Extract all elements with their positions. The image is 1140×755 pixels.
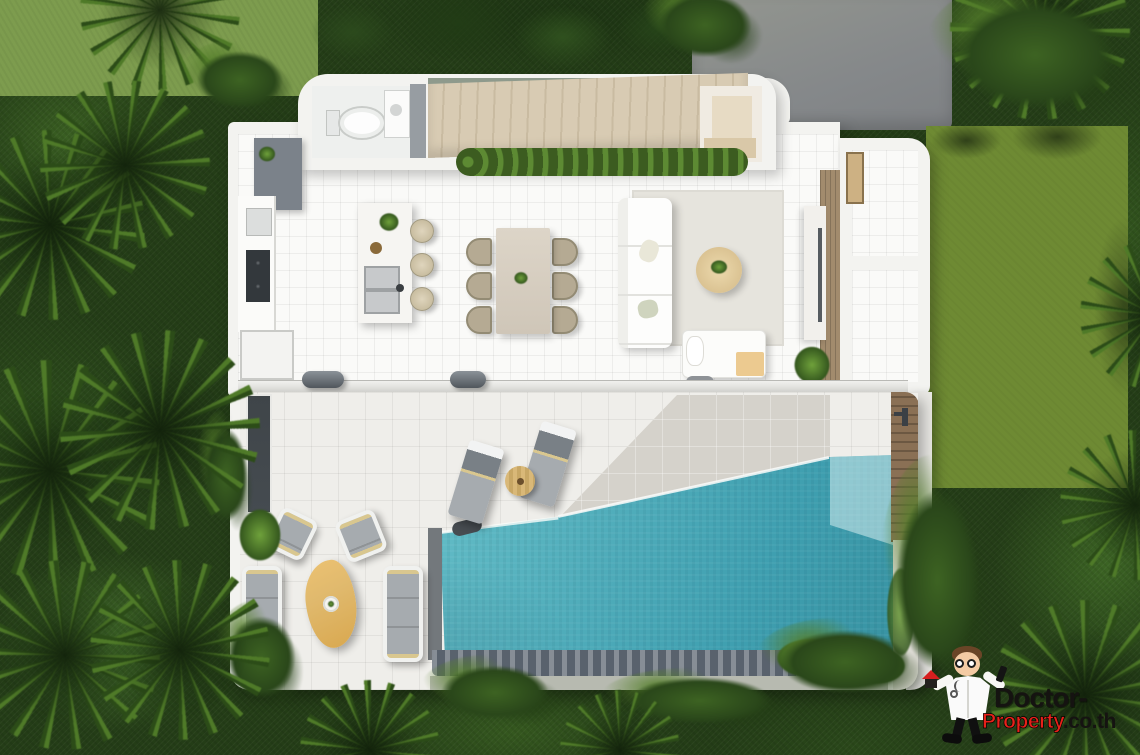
mascot-coat-line [967, 680, 969, 718]
brand-text-line2: Property.co.th [982, 710, 1116, 734]
mascot-glasses [967, 659, 976, 668]
pool-edge-left [428, 528, 442, 660]
cooktop [246, 250, 270, 302]
tv-screen [818, 228, 822, 322]
villa-floor-plan-rendering: Doctor- Property.co.th [0, 0, 1140, 755]
bar-stool [410, 219, 434, 243]
kitchen-lower-cabinet [240, 330, 294, 380]
table-bowl-plant [327, 600, 335, 608]
white-sofa [618, 198, 672, 348]
dining-chair [466, 272, 492, 300]
stacked-sliding-door [450, 371, 486, 388]
outdoor-shower-arm [894, 412, 908, 416]
stacked-sliding-door [302, 371, 344, 388]
wood-bench [846, 152, 864, 204]
foliage-overhang [420, 655, 570, 730]
daybed-throw [736, 352, 764, 376]
mascot-shoe [971, 733, 992, 745]
entry-step [712, 96, 752, 138]
brand-text-property: Property [982, 710, 1063, 733]
red-roof-house-icon-body [925, 679, 937, 688]
mascot-gadget-icon [995, 665, 1007, 682]
mascot-shoe [941, 733, 962, 745]
stethoscope-tube [954, 680, 966, 692]
red-roof-house-icon [922, 670, 940, 679]
bar-stool [410, 253, 434, 277]
coffee-table-plant [708, 258, 730, 276]
toilet [338, 106, 386, 140]
island-double-sink [364, 266, 400, 314]
kitchen-sink [246, 208, 272, 236]
utility-room-floor [852, 270, 918, 382]
tv-console [804, 206, 826, 340]
palm-tree [90, 560, 270, 740]
outdoor-shower [902, 408, 908, 426]
island-faucet [396, 284, 404, 292]
watermark-logo: Doctor- Property.co.th [918, 638, 1140, 755]
foliage-overhang [925, 0, 1140, 130]
bathroom-divider-wall [410, 84, 426, 158]
daybed-pillow [686, 336, 704, 366]
sun-lounger [447, 439, 504, 524]
side-table-knob [517, 478, 524, 485]
dining-chair [466, 306, 492, 334]
outdoor-sofa [383, 566, 423, 662]
bar-stool [410, 287, 434, 311]
dining-chair [466, 238, 492, 266]
outdoor-armchair [333, 508, 388, 565]
vanity-basin [390, 104, 402, 116]
wood-bowl [370, 242, 382, 254]
dining-centerpiece [512, 270, 530, 286]
island-plant [376, 210, 402, 234]
sun-lounger [519, 420, 577, 507]
brand-text-tld: .co.th [1063, 710, 1116, 733]
mascot-glasses [955, 659, 964, 668]
stair-planter [456, 148, 748, 176]
kitchen-plant [256, 144, 278, 164]
foliage-overhang [640, 0, 770, 70]
foliage-overhang [180, 40, 300, 120]
